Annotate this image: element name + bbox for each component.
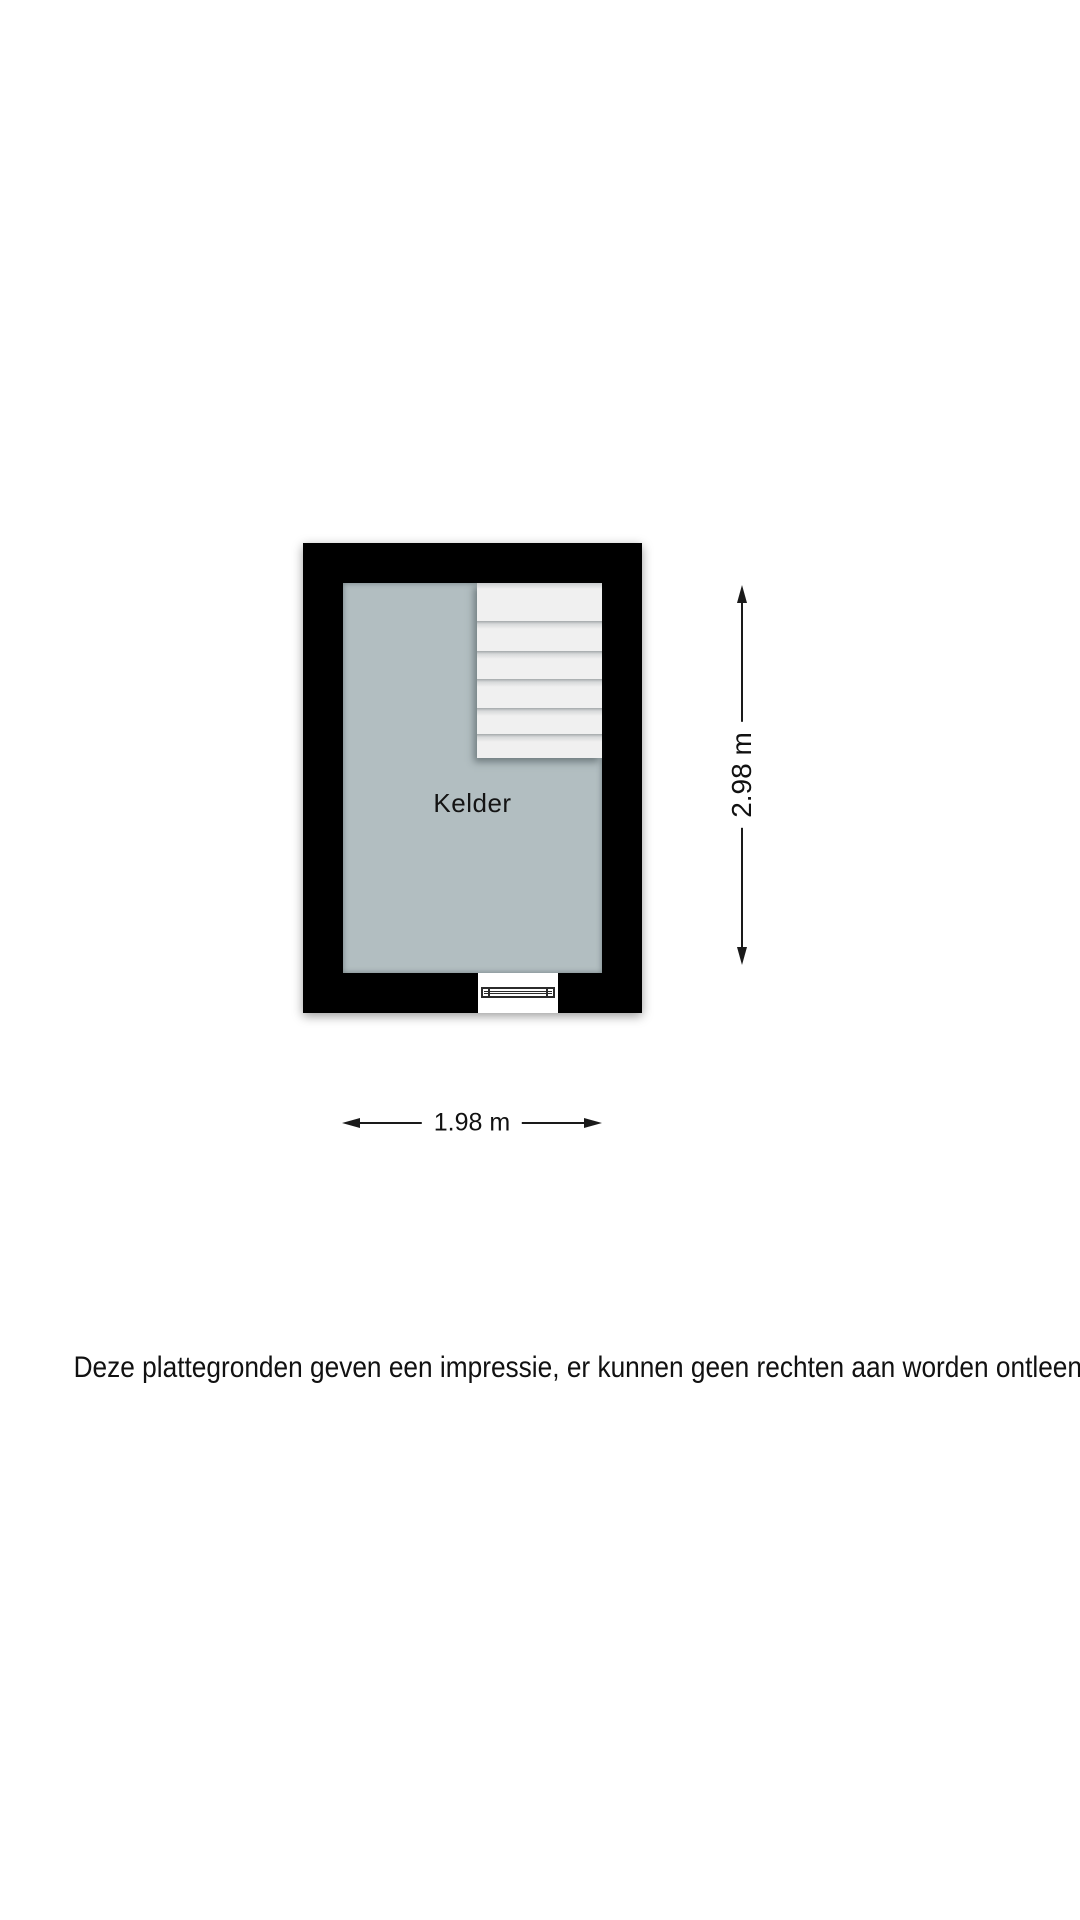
window-glass-line <box>484 991 552 992</box>
window-jamb <box>488 989 490 996</box>
disclaimer-text: Deze plattegronden geven een impressie, … <box>0 1346 1080 1390</box>
disclaimer-line: Deze plattegronden geven een impressie, … <box>74 1346 1080 1390</box>
staircase <box>477 583 602 758</box>
room-kelder: Kelder <box>343 583 602 973</box>
stair-tread <box>477 621 602 651</box>
window-opening <box>478 973 558 1013</box>
arrow-down-icon <box>737 947 747 965</box>
floorplan-page: Kelder 2.98 m 1.98 m Deze plattegronden … <box>0 0 1080 1920</box>
stair-tread <box>477 583 602 621</box>
stair-tread <box>477 734 602 758</box>
dimension-label-width: 1.98 m <box>422 1109 522 1138</box>
stair-tread <box>477 651 602 679</box>
window-symbol-icon <box>481 987 555 998</box>
dimension-horizontal: 1.98 m <box>342 1113 602 1133</box>
window-glass-line <box>484 993 552 994</box>
dimension-vertical: 2.98 m <box>732 585 752 965</box>
stair-tread <box>477 679 602 708</box>
arrow-left-icon <box>342 1118 360 1128</box>
stair-tread <box>477 708 602 734</box>
room-label: Kelder <box>343 785 602 821</box>
dimension-label-height: 2.98 m <box>724 722 760 828</box>
floor-plan: Kelder <box>303 543 642 1013</box>
arrow-right-icon <box>584 1118 602 1128</box>
arrow-up-icon <box>737 585 747 603</box>
window-jamb <box>546 989 548 996</box>
